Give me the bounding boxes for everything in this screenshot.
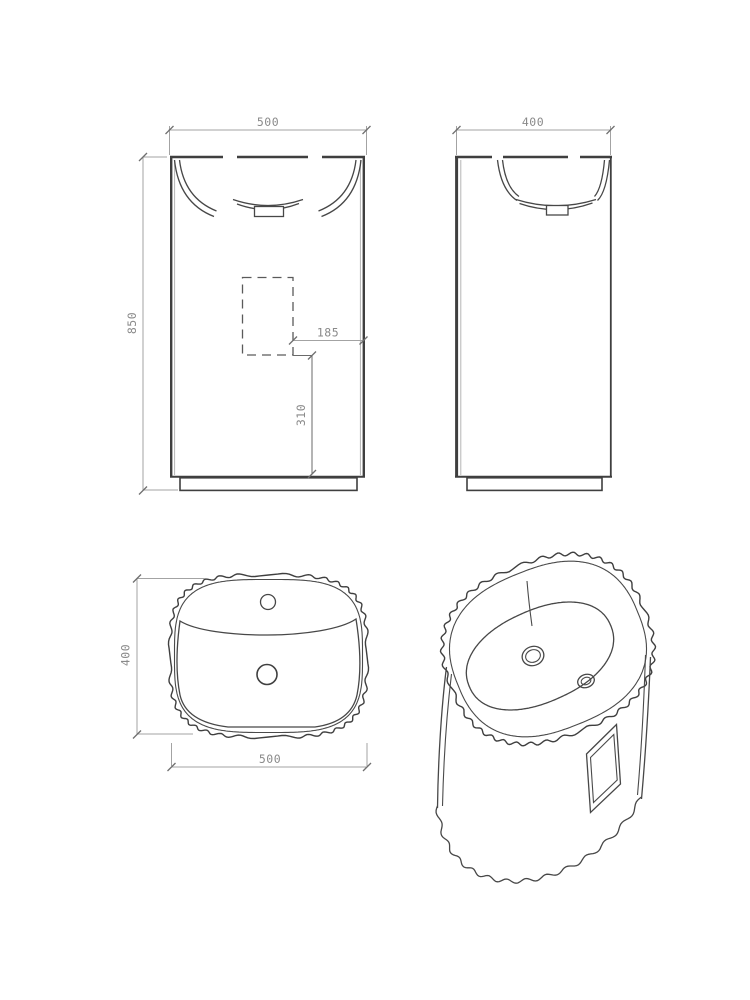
dim-side-depth-label: 400: [522, 115, 544, 129]
rim-inner-line: [175, 580, 363, 733]
basin-seam-3d: [527, 581, 532, 626]
access-recess-dashed: [243, 278, 294, 356]
dim-front-width-label: 500: [257, 115, 279, 129]
fluted-rim-outline: [169, 574, 369, 739]
dim-side-depth: 400: [453, 115, 615, 155]
perspective-view: [436, 552, 655, 883]
rim-inner-3d: [450, 561, 647, 737]
dim-front-height-label: 850: [125, 312, 139, 334]
dim-drain-offset-label: 185: [317, 326, 339, 340]
dim-drain-height: 310: [294, 352, 316, 479]
dim-top-width: 500: [168, 743, 372, 771]
fluted-rim-3d: [441, 552, 656, 746]
top-view: 400 500: [119, 574, 372, 772]
dim-top-width-label: 500: [259, 752, 281, 766]
technical-drawing: 500 850 185 310: [0, 0, 750, 1000]
overflow-fitting-front: [255, 207, 284, 217]
dim-drain-height-label: 310: [294, 404, 308, 426]
front-view: 500 850 185 310: [125, 115, 371, 495]
basin-profile-side: [498, 160, 610, 215]
drawing-canvas: 500 850 185 310: [0, 0, 750, 1000]
drain-hole-top: [257, 665, 277, 685]
dim-top-depth-label: 400: [119, 644, 133, 666]
drain-hole-3d: [519, 643, 546, 668]
body-bottom-fluted-edge: [436, 797, 641, 883]
overflow-fitting-side: [547, 206, 569, 216]
dim-front-width: 500: [166, 115, 371, 155]
basin-profile-front: [175, 160, 362, 217]
side-view: 400: [453, 115, 615, 490]
faucet-hole-top: [261, 595, 276, 610]
access-cutout-3d: [587, 725, 621, 813]
basin-outline-top: [177, 619, 360, 727]
dim-drain-offset: 185: [289, 326, 368, 345]
